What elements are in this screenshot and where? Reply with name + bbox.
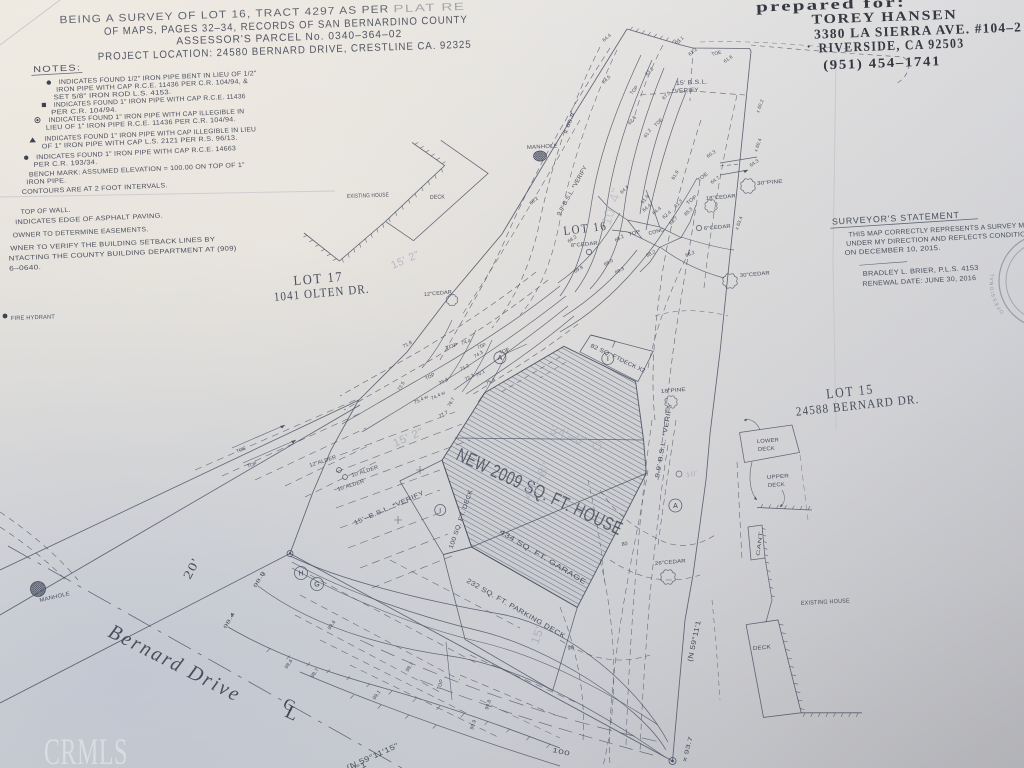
svg-text:DECK: DECK bbox=[758, 446, 776, 453]
svg-text:I: I bbox=[439, 507, 441, 514]
svg-text:x: x bbox=[231, 613, 234, 619]
svg-text:G: G bbox=[314, 582, 319, 589]
svg-text:6–0640.: 6–0640. bbox=[9, 264, 41, 272]
svg-text:80: 80 bbox=[621, 541, 628, 548]
svg-text:DECK: DECK bbox=[430, 194, 445, 201]
svg-text:DECK: DECK bbox=[768, 482, 786, 489]
svg-text:x: x bbox=[263, 572, 266, 578]
svg-text:CRMLS: CRMLS bbox=[44, 732, 128, 768]
svg-text:A: A bbox=[673, 503, 678, 510]
svg-text:A: A bbox=[498, 355, 503, 362]
svg-text:I: I bbox=[607, 356, 609, 363]
svg-text:·: · bbox=[806, 39, 811, 54]
svg-text:PLAT RE: PLAT RE bbox=[393, 1, 465, 15]
